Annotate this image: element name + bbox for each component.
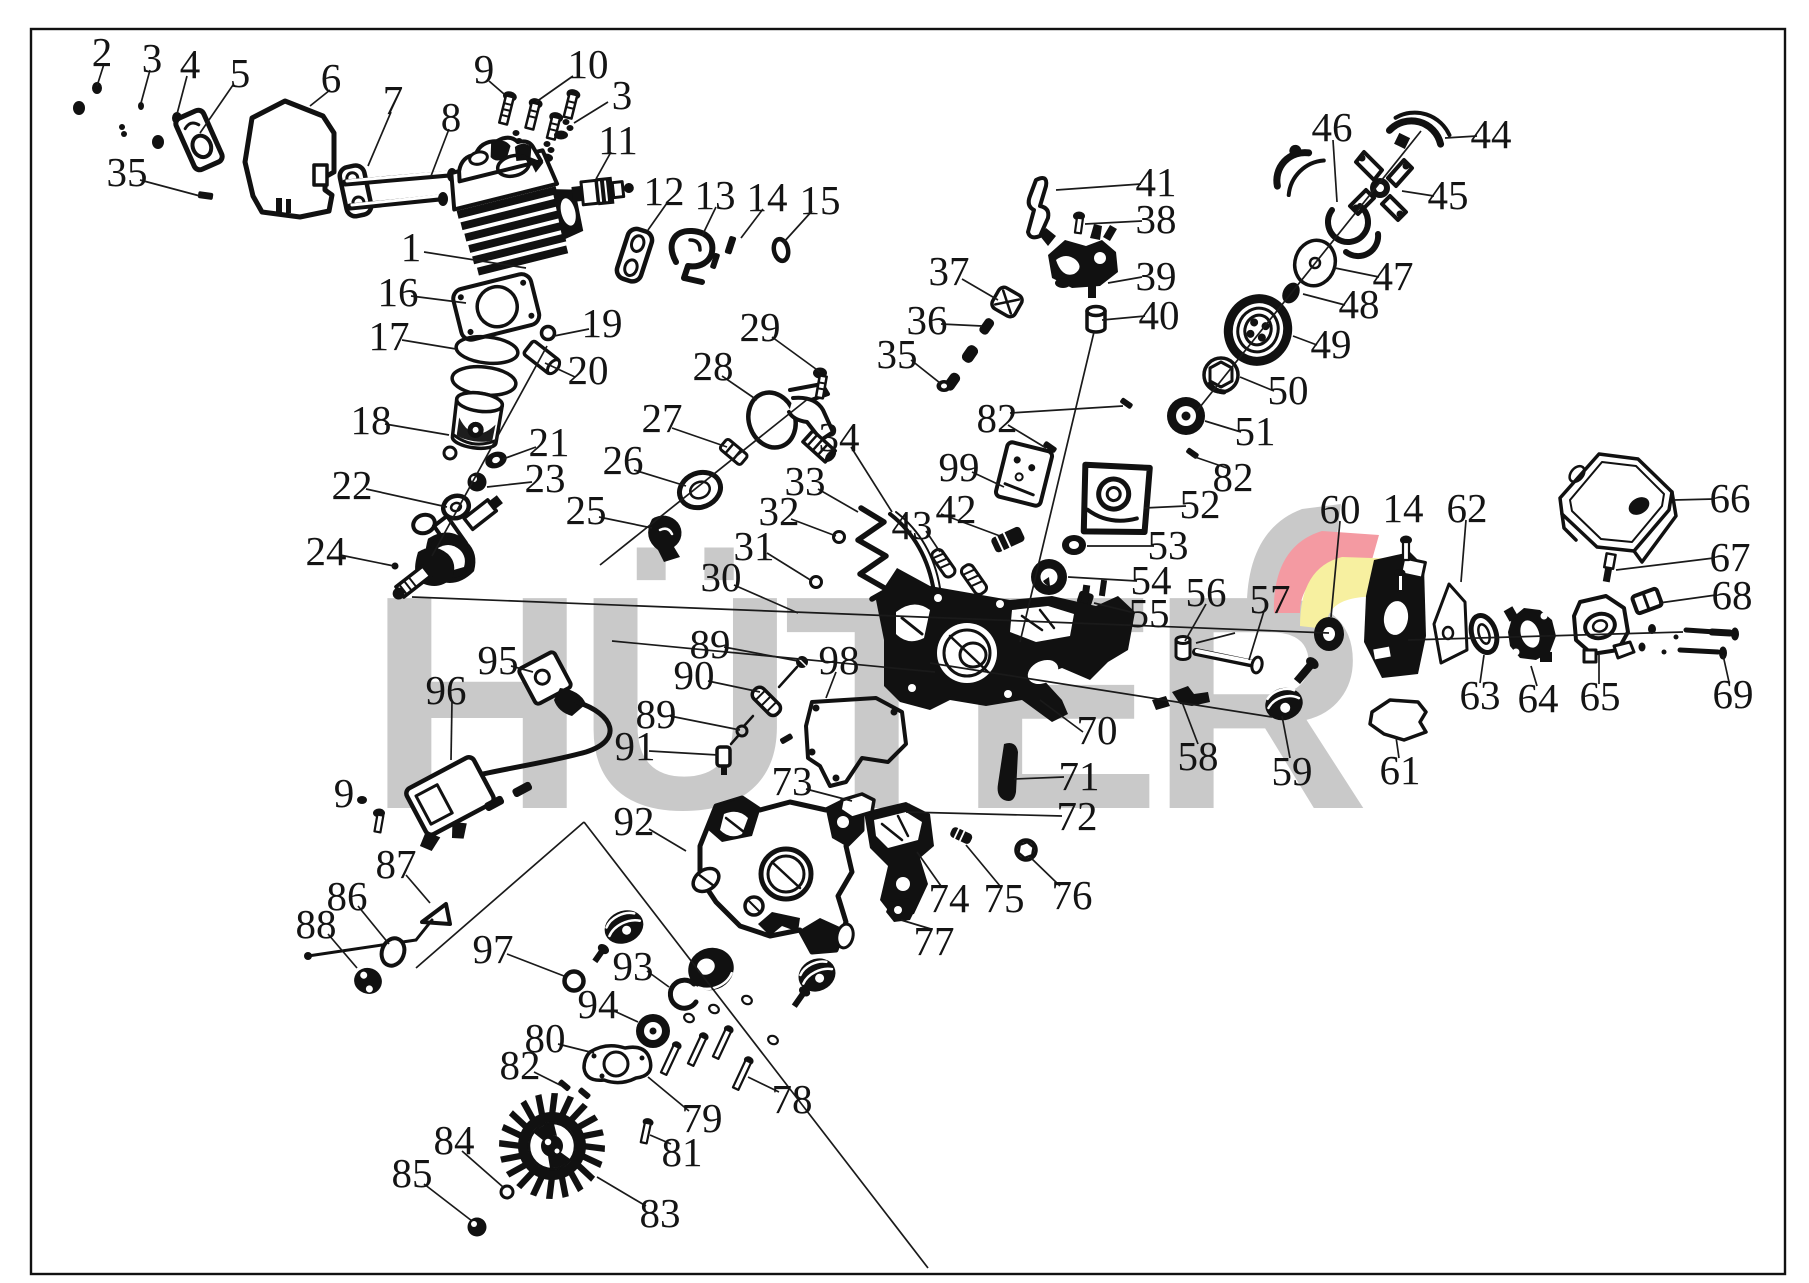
- svg-text:95: 95: [478, 637, 519, 683]
- svg-text:5: 5: [230, 50, 251, 96]
- svg-text:20: 20: [568, 347, 609, 393]
- svg-text:34: 34: [819, 414, 860, 460]
- svg-text:14: 14: [1383, 485, 1424, 531]
- svg-text:90: 90: [674, 652, 715, 698]
- svg-text:7: 7: [383, 77, 404, 123]
- svg-text:65: 65: [1580, 673, 1621, 719]
- svg-text:68: 68: [1712, 572, 1753, 618]
- svg-text:35: 35: [107, 149, 148, 195]
- svg-text:63: 63: [1460, 672, 1501, 718]
- svg-text:36: 36: [907, 297, 948, 343]
- svg-text:97: 97: [473, 926, 514, 972]
- svg-text:92: 92: [614, 798, 655, 844]
- svg-text:94: 94: [578, 981, 619, 1027]
- svg-text:82: 82: [977, 395, 1018, 441]
- svg-text:18: 18: [351, 397, 392, 443]
- svg-text:14: 14: [747, 174, 788, 220]
- svg-text:84: 84: [434, 1117, 475, 1163]
- svg-text:11: 11: [598, 117, 637, 163]
- svg-text:12: 12: [644, 168, 685, 214]
- svg-text:41: 41: [1136, 159, 1177, 205]
- svg-text:96: 96: [426, 667, 467, 713]
- svg-text:82: 82: [500, 1042, 541, 1088]
- svg-text:19: 19: [582, 300, 623, 346]
- svg-text:43: 43: [892, 502, 933, 548]
- svg-text:75: 75: [984, 875, 1025, 921]
- svg-text:26: 26: [603, 437, 644, 483]
- svg-text:15: 15: [800, 177, 841, 223]
- svg-text:8: 8: [441, 94, 462, 140]
- svg-text:85: 85: [392, 1150, 433, 1196]
- svg-text:59: 59: [1272, 748, 1313, 794]
- svg-text:49: 49: [1311, 321, 1352, 367]
- svg-text:62: 62: [1447, 485, 1488, 531]
- svg-text:1: 1: [401, 224, 422, 270]
- svg-text:74: 74: [929, 875, 970, 921]
- svg-text:3: 3: [142, 35, 163, 81]
- svg-text:88: 88: [296, 901, 337, 947]
- svg-text:44: 44: [1471, 111, 1512, 157]
- svg-text:73: 73: [772, 758, 813, 804]
- svg-text:78: 78: [772, 1076, 813, 1122]
- svg-text:28: 28: [693, 343, 734, 389]
- svg-text:2: 2: [92, 29, 113, 75]
- svg-text:87: 87: [376, 841, 417, 887]
- svg-text:64: 64: [1518, 675, 1559, 721]
- svg-text:9: 9: [474, 46, 495, 92]
- svg-text:29: 29: [740, 304, 781, 350]
- svg-text:16: 16: [378, 269, 419, 315]
- svg-text:24: 24: [306, 528, 347, 574]
- svg-text:91: 91: [615, 723, 656, 769]
- svg-text:61: 61: [1380, 747, 1421, 793]
- svg-text:6: 6: [321, 55, 342, 101]
- svg-text:66: 66: [1710, 475, 1751, 521]
- svg-text:69: 69: [1713, 671, 1754, 717]
- svg-text:23: 23: [525, 455, 566, 501]
- svg-text:70: 70: [1077, 707, 1118, 753]
- svg-text:82: 82: [1213, 454, 1254, 500]
- svg-text:45: 45: [1428, 172, 1469, 218]
- svg-text:3: 3: [612, 72, 633, 118]
- svg-text:77: 77: [914, 918, 955, 964]
- svg-text:33: 33: [785, 458, 826, 504]
- svg-text:76: 76: [1052, 872, 1093, 918]
- svg-text:56: 56: [1186, 569, 1227, 615]
- svg-text:99: 99: [939, 444, 980, 490]
- svg-text:9: 9: [334, 770, 355, 816]
- svg-text:37: 37: [929, 248, 970, 294]
- svg-text:51: 51: [1235, 408, 1276, 454]
- svg-text:42: 42: [936, 486, 977, 532]
- svg-text:93: 93: [613, 943, 654, 989]
- svg-text:25: 25: [566, 487, 607, 533]
- svg-text:83: 83: [640, 1190, 681, 1236]
- svg-text:58: 58: [1178, 733, 1219, 779]
- svg-text:55: 55: [1129, 590, 1170, 636]
- svg-text:72: 72: [1057, 793, 1098, 839]
- svg-text:4: 4: [180, 41, 201, 87]
- svg-text:57: 57: [1250, 576, 1291, 622]
- svg-text:27: 27: [642, 395, 683, 441]
- svg-text:60: 60: [1320, 486, 1361, 532]
- svg-text:98: 98: [819, 637, 860, 683]
- svg-text:17: 17: [369, 313, 410, 359]
- svg-text:10: 10: [568, 41, 609, 87]
- svg-text:22: 22: [332, 462, 373, 508]
- svg-text:50: 50: [1268, 367, 1309, 413]
- svg-text:46: 46: [1312, 104, 1353, 150]
- svg-text:13: 13: [695, 172, 736, 218]
- svg-text:40: 40: [1139, 292, 1180, 338]
- svg-text:81: 81: [662, 1129, 703, 1175]
